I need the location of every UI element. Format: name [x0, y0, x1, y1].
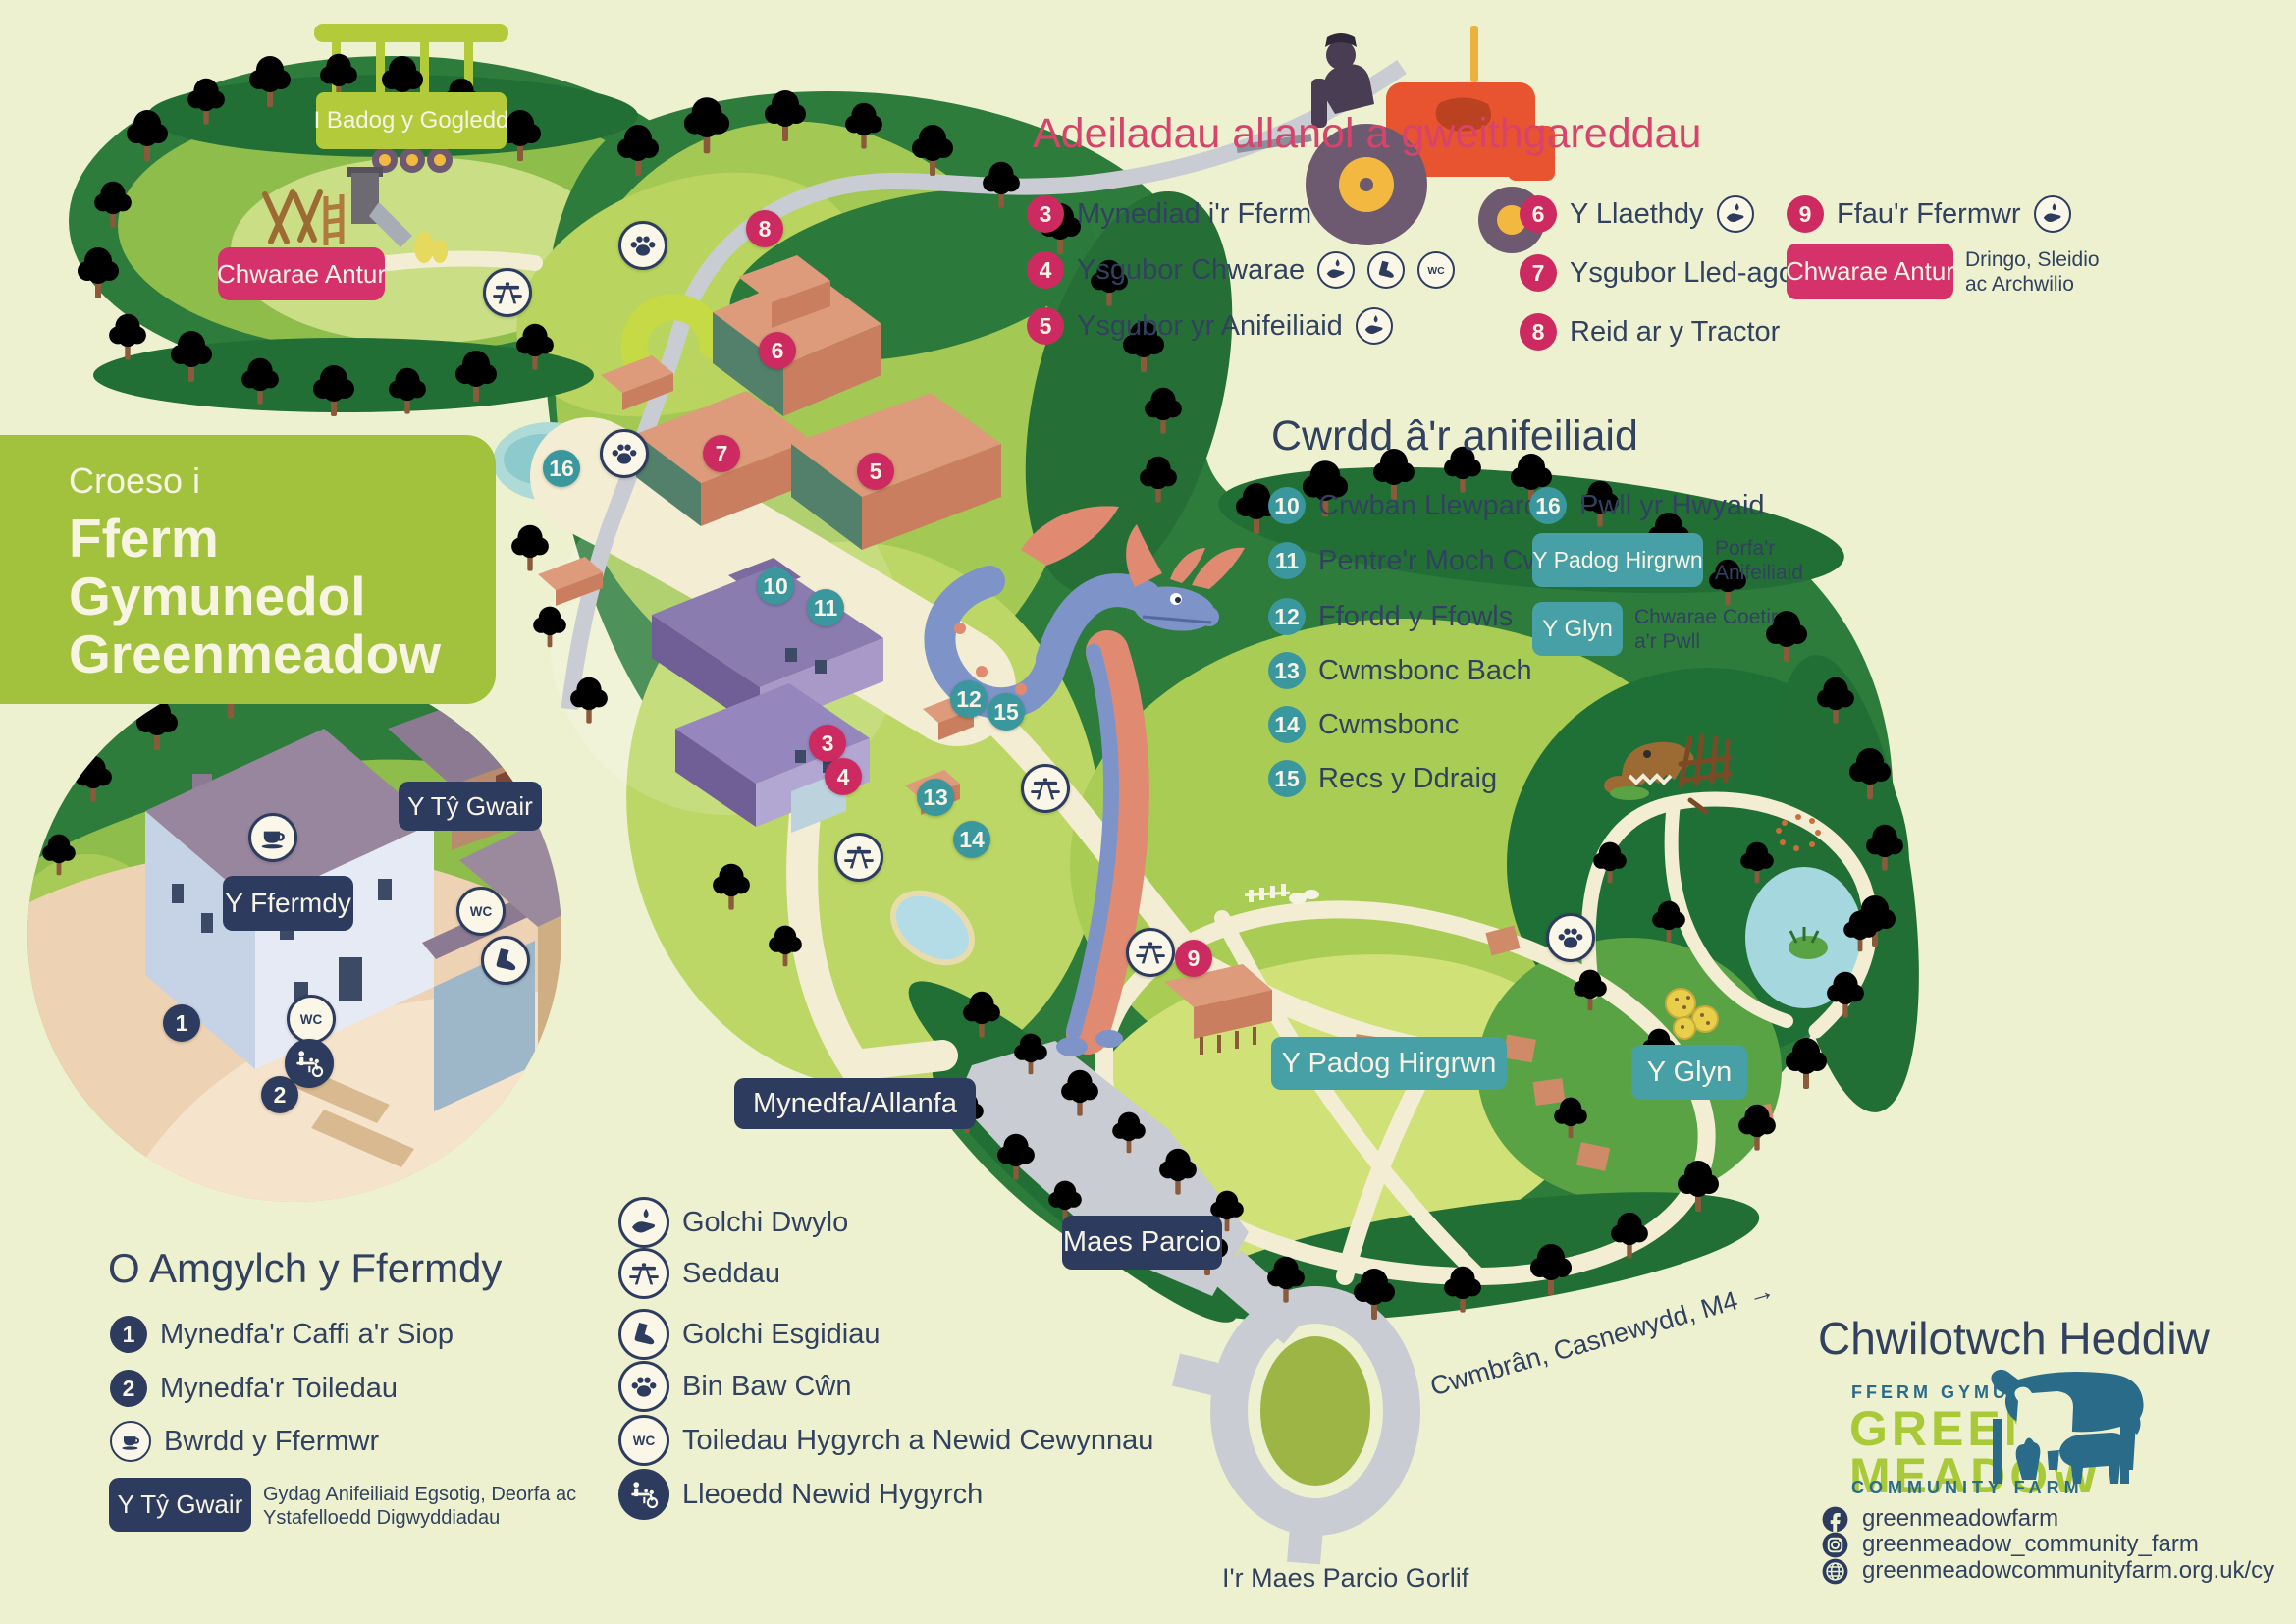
discover-heading: Chwilotwch Heddiw — [1818, 1312, 2210, 1365]
welcome-panel: Croeso i Fferm Gymunedol Greenmeadow — [0, 435, 496, 704]
welcome-title-line1: Fferm — [69, 510, 496, 568]
overflow-car-park-label: I'r Maes Parcio Gorlif — [1222, 1563, 1468, 1594]
legend-item-5[interactable]: 5 Ysgubor yr Anifeiliaid — [1027, 306, 1393, 346]
legend-item-seating[interactable]: Seddau — [618, 1254, 780, 1293]
legend-badge-hay-house: Y Tŷ Gwair — [109, 1478, 251, 1532]
changing-places-icon — [618, 1469, 669, 1520]
map-marker-4[interactable]: 4 — [825, 758, 862, 795]
legend-item-11[interactable]: 11 Pentre'r Moch Cwta — [1268, 541, 1568, 580]
legend-item-10[interactable]: 10 Crwban Llewpard — [1268, 486, 1540, 525]
handwash-icon — [1356, 307, 1393, 345]
hay-house-desc: Gydag Anifeiliaid Egsotig, Deorfa ac Yst… — [263, 1483, 576, 1530]
map-paw-icon — [618, 221, 667, 270]
paw-icon — [618, 1361, 669, 1412]
map-marker-11[interactable]: 11 — [807, 589, 844, 626]
map-picnic-icon — [1021, 764, 1070, 813]
logo-animals — [1983, 1360, 2296, 1517]
legend-item-6[interactable]: 6 Y Llaethdy — [1520, 194, 1754, 234]
map-marker-3[interactable]: 3 — [809, 725, 846, 762]
legend-item-hand-washing[interactable]: Golchi Dwylo — [618, 1203, 848, 1242]
welcome-title-line3: Greenmeadow — [69, 625, 496, 683]
legend-badge-glyn: Y Glyn — [1532, 602, 1623, 656]
map-marker-1[interactable]: 1 — [163, 1004, 200, 1042]
legend-item-4[interactable]: 4 Ysgubor Chwarae — [1027, 250, 1455, 290]
map-picnic-icon — [483, 268, 532, 317]
map-wc-icon — [287, 995, 336, 1044]
handwash-icon — [2034, 195, 2071, 233]
wc-icon — [618, 1415, 669, 1466]
social-instagram[interactable]: greenmeadow_community_farm — [1820, 1530, 2199, 1559]
map-marker-8[interactable]: 8 — [746, 210, 783, 247]
legend-badge-oval-paddock: Y Padog Hirgrwn — [1532, 533, 1703, 587]
map-picnic-icon — [1126, 928, 1175, 977]
map-label-adventure-play: Chwarae Antur — [218, 247, 385, 300]
legend-item-farmers-table[interactable]: Bwrdd y Ffermwr — [110, 1422, 379, 1461]
boot-wash-icon — [1367, 251, 1405, 289]
farm-map-poster: WC — [0, 0, 2296, 1624]
legend-item-1[interactable]: 1 Mynedfa'r Caffi a'r Siop — [110, 1315, 454, 1354]
map-changing-icon — [285, 1039, 334, 1088]
map-marker-7[interactable]: 7 — [703, 435, 740, 472]
legend-item-12[interactable]: 12 Ffordd y Ffowls — [1268, 597, 1513, 636]
map-marker-14[interactable]: 14 — [953, 821, 990, 858]
oval-paddock-desc: Porfa'r Anifeiliaid — [1715, 536, 1803, 585]
map-label-farmhouse: Y Ffermdy — [223, 876, 353, 931]
map-marker-16[interactable]: 16 — [543, 450, 580, 487]
legend-badge-adventure-play: Chwarae Antur — [1787, 244, 1953, 299]
legend-item-dog-bin[interactable]: Bin Baw Cŵn — [618, 1367, 851, 1406]
handwash-icon — [1317, 251, 1355, 289]
map-marker-5[interactable]: 5 — [857, 453, 894, 490]
farmhouse-section-heading: O Amgylch y Ffermdy — [108, 1245, 502, 1292]
map-label-car-park: Maes Parcio — [1062, 1216, 1222, 1270]
map-wc-icon — [456, 887, 506, 936]
legend-item-accessible-toilets[interactable]: Toiledau Hygyrch a Newid Cewynnau — [618, 1421, 1153, 1460]
map-picnic-icon — [834, 833, 883, 882]
map-marker-15[interactable]: 15 — [988, 693, 1025, 731]
map-label-north-paddock: I Badog y Gogledd — [316, 92, 507, 149]
legend-item-8[interactable]: 8 Reid ar y Tractor — [1520, 312, 1780, 352]
legend-item-3[interactable]: 3 Mynediad i'r Fferm — [1027, 194, 1311, 234]
legend-item-14[interactable]: 14 Cwmsbonc — [1268, 705, 1459, 744]
legend-item-changing-places[interactable]: Lleoedd Newid Hygyrch — [618, 1475, 983, 1514]
map-label-entrance-exit: Mynedfa/Allanfa — [734, 1078, 976, 1129]
map-marker-6[interactable]: 6 — [759, 332, 796, 369]
glyn-desc: Chwarae Coetir a'r Pwll — [1634, 605, 1778, 654]
map-marker-9[interactable]: 9 — [1175, 940, 1212, 977]
map-marker-13[interactable]: 13 — [917, 779, 954, 816]
map-marker-10[interactable]: 10 — [757, 568, 794, 605]
map-boot-icon — [481, 936, 530, 985]
social-website[interactable]: greenmeadowcommunityfarm.org.uk/cy — [1820, 1556, 2274, 1586]
globe-icon — [1820, 1556, 1850, 1587]
map-paw-icon — [1546, 913, 1595, 962]
map-label-hay-house: Y Tŷ Gwair — [399, 782, 542, 831]
handwash-icon — [1717, 195, 1754, 233]
welcome-pre: Croeso i — [69, 460, 496, 502]
legend-item-9[interactable]: 9 Ffau'r Ffermwr — [1787, 194, 2071, 234]
map-label-glyn: Y Glyn — [1631, 1045, 1747, 1100]
map-label-oval-paddock: Y Padog Hirgrwn — [1271, 1037, 1507, 1090]
legend-item-13[interactable]: 13 Cwmsbonc Bach — [1268, 651, 1532, 690]
map-paw-icon — [600, 429, 649, 478]
legend-item-15[interactable]: 15 Recs y Ddraig — [1268, 759, 1497, 798]
map-marker-12[interactable]: 12 — [950, 680, 988, 718]
legend-item-2[interactable]: 2 Mynedfa'r Toiledau — [110, 1369, 398, 1408]
animals-section-heading: Cwrdd â'r anifeiliaid — [1271, 412, 1638, 460]
adventure-play-desc: Dringo, Sleidio ac Archwilio — [1965, 247, 2100, 297]
buildings-section-heading: Adeiladau allanol a gweithgareddau — [1033, 110, 1701, 158]
legend-item-16[interactable]: 16 Pwll yr Hwyaid — [1529, 486, 1765, 525]
legend-item-boot-washing[interactable]: Golchi Esgidiau — [618, 1315, 881, 1354]
map-cup-icon — [248, 813, 297, 862]
boot-wash-icon — [618, 1309, 669, 1360]
welcome-title-line2: Gymunedol — [69, 568, 496, 625]
cup-icon — [110, 1421, 151, 1462]
wc-icon — [1417, 251, 1455, 289]
handwash-icon — [618, 1197, 669, 1248]
picnic-table-icon — [618, 1248, 669, 1299]
